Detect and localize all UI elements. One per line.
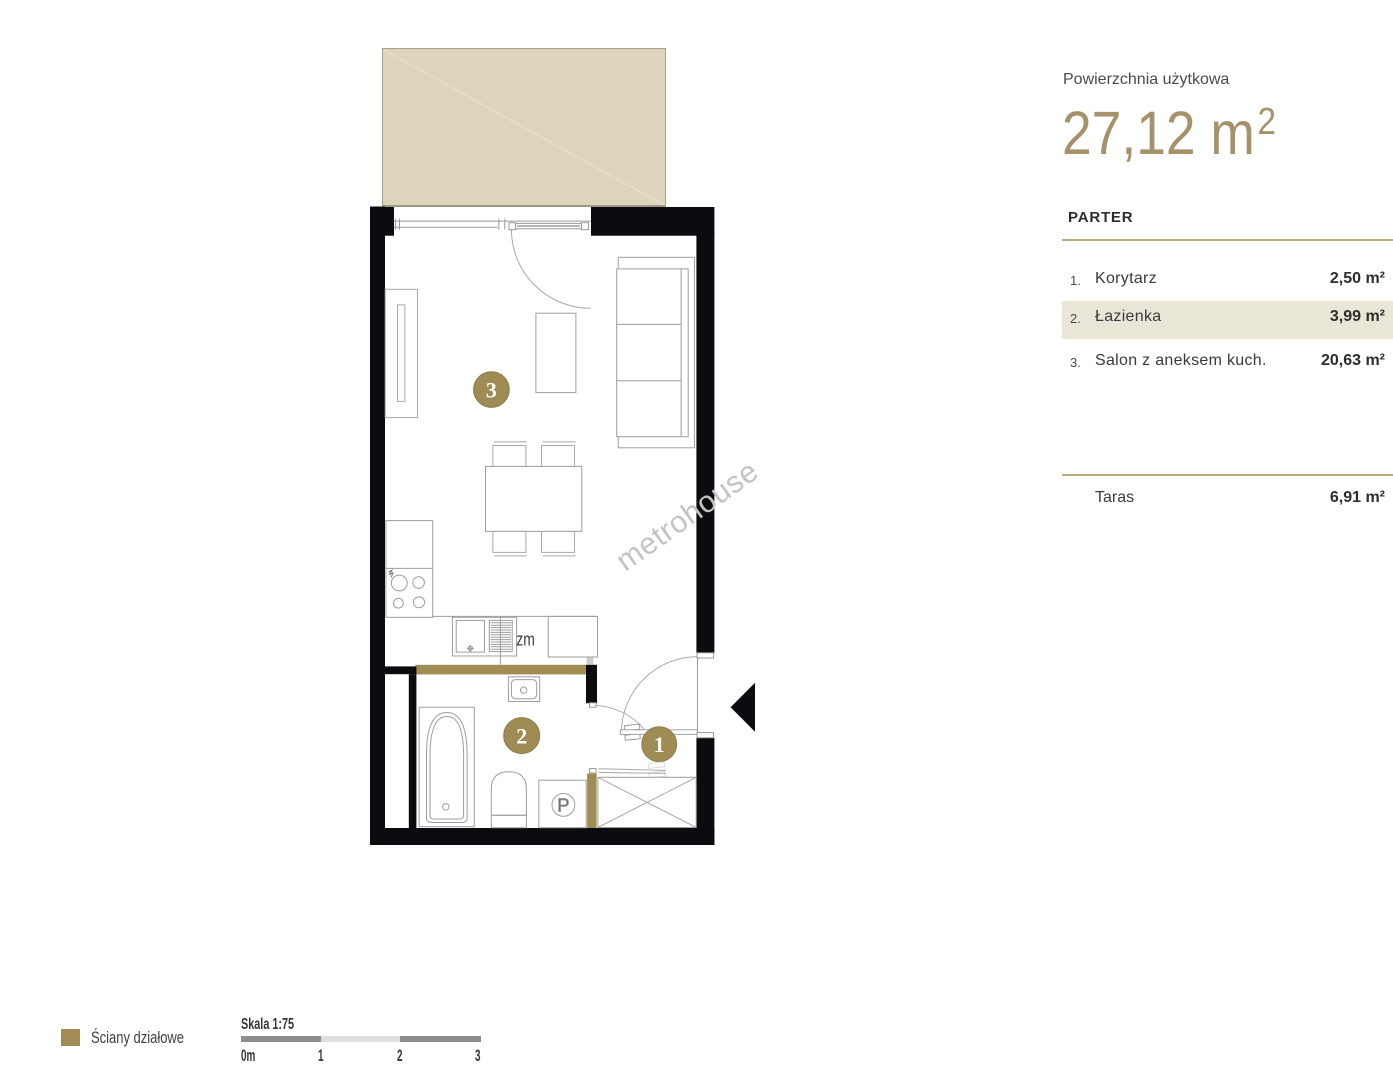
svg-text:2: 2 [516,724,527,749]
svg-text:3: 3 [486,378,497,403]
svg-text:P: P [557,795,569,815]
svg-text:metrohouse: metrohouse [610,454,765,578]
svg-text:1: 1 [654,732,665,757]
svg-text:zm: zm [516,628,535,649]
